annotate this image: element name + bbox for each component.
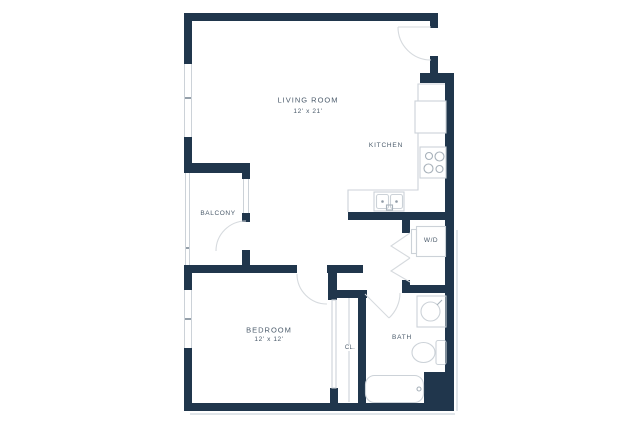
bath-label: BATH bbox=[392, 335, 412, 342]
balcony-door-arc bbox=[216, 221, 246, 251]
bedroom-label: BEDROOM bbox=[246, 326, 292, 334]
closet-label: CL. bbox=[344, 345, 356, 351]
fixtures-layer bbox=[0, 0, 639, 426]
closet-door bbox=[332, 300, 336, 388]
fridge bbox=[415, 101, 446, 133]
stove bbox=[420, 147, 446, 178]
living-room-dimensions: 12' x 21' bbox=[293, 109, 322, 116]
floor-plan-canvas: LIVING ROOM 12' x 21' KITCHEN BALCONY BE… bbox=[0, 0, 639, 426]
laundry-bifold-doors bbox=[391, 233, 410, 282]
toilet bbox=[412, 341, 446, 365]
bedroom-dimensions: 12' x 12' bbox=[254, 337, 283, 344]
bath-door bbox=[365, 293, 400, 318]
kitchen-sink bbox=[374, 192, 404, 211]
laundry-label: W/D bbox=[424, 238, 438, 245]
living-room-label: LIVING ROOM bbox=[277, 96, 338, 104]
balcony-label: BALCONY bbox=[200, 211, 235, 218]
entry-door bbox=[398, 27, 431, 60]
bedroom-door-arc bbox=[297, 274, 327, 304]
kitchen-label: KITCHEN bbox=[369, 143, 403, 150]
bathtub bbox=[366, 376, 424, 403]
bath-sink bbox=[417, 296, 446, 327]
